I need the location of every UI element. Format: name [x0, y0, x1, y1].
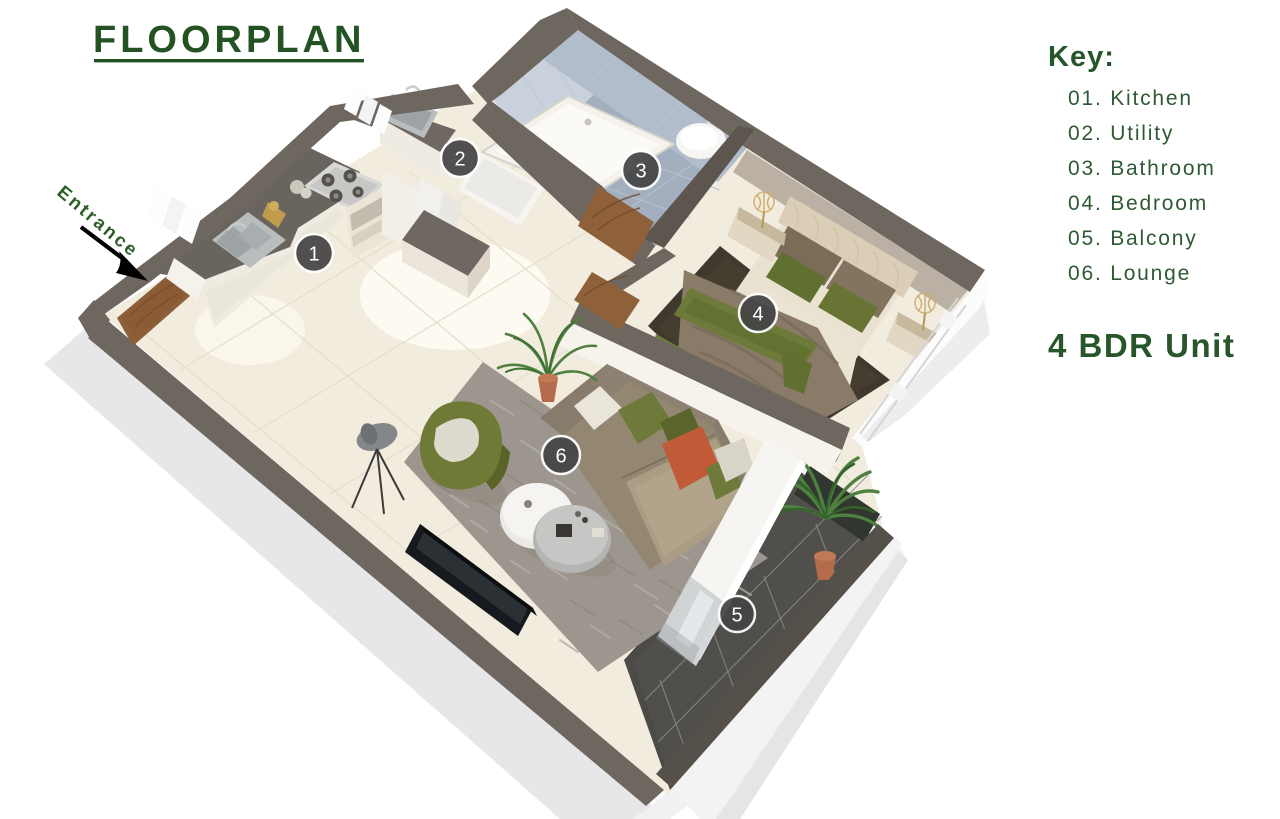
- svg-text:06. Lounge: 06. Lounge: [1068, 262, 1191, 285]
- svg-text:3: 3: [635, 161, 646, 183]
- svg-text:6: 6: [555, 446, 566, 468]
- svg-text:4 BDR Unit: 4 BDR Unit: [1048, 327, 1235, 364]
- svg-text:03. Bathroom: 03. Bathroom: [1068, 157, 1216, 180]
- svg-text:Key:: Key:: [1048, 41, 1115, 73]
- svg-text:5: 5: [731, 605, 742, 627]
- svg-text:2: 2: [454, 149, 465, 171]
- svg-text:1: 1: [308, 244, 319, 266]
- svg-text:01. Kitchen: 01. Kitchen: [1068, 87, 1193, 110]
- svg-text:FLOORPLAN: FLOORPLAN: [93, 19, 365, 61]
- svg-text:4: 4: [752, 304, 763, 326]
- svg-text:02. Utility: 02. Utility: [1068, 122, 1174, 145]
- svg-text:04. Bedroom: 04. Bedroom: [1068, 192, 1208, 215]
- svg-text:05. Balcony: 05. Balcony: [1068, 227, 1198, 250]
